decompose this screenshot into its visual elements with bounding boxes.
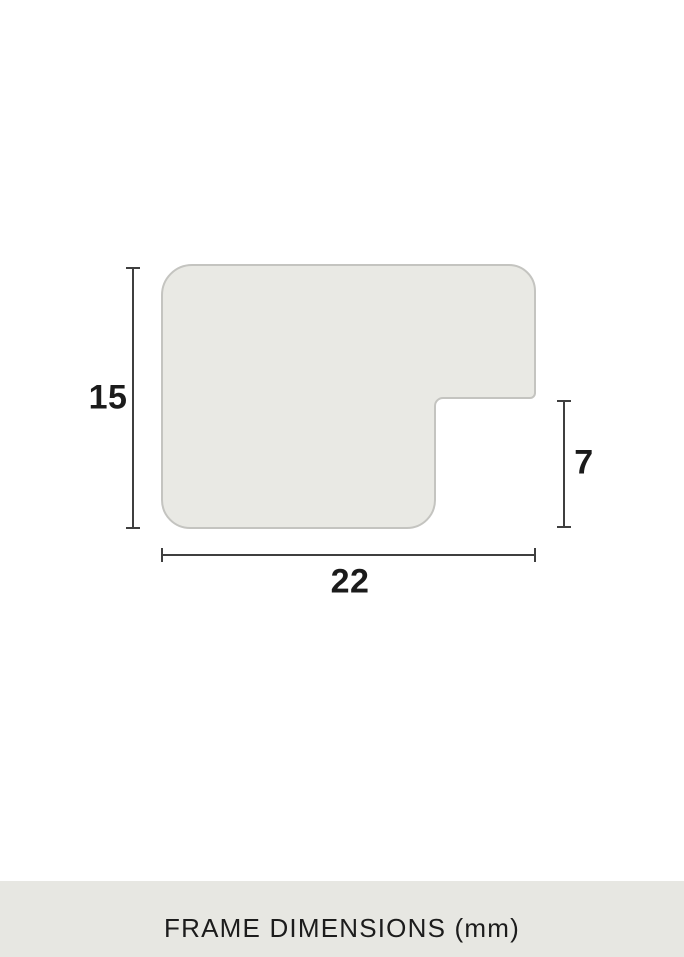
width-dimension-line — [162, 548, 535, 562]
frame-profile-page: 15 7 22 FRAME DIMENSIONS (mm) — [0, 0, 684, 957]
width-dimension-label: 22 — [331, 563, 370, 602]
frame-profile-shape — [162, 265, 535, 528]
profile-diagram: 15 7 22 — [0, 0, 684, 881]
height-dimension-line — [126, 268, 140, 528]
notch-dimension-line — [557, 401, 571, 527]
notch-dimension-label: 7 — [574, 444, 593, 483]
profile-cross-section-svg — [0, 0, 684, 881]
footer-bar: FRAME DIMENSIONS (mm) — [0, 881, 684, 957]
footer-caption: FRAME DIMENSIONS (mm) — [164, 913, 520, 944]
height-dimension-label: 15 — [89, 379, 128, 418]
